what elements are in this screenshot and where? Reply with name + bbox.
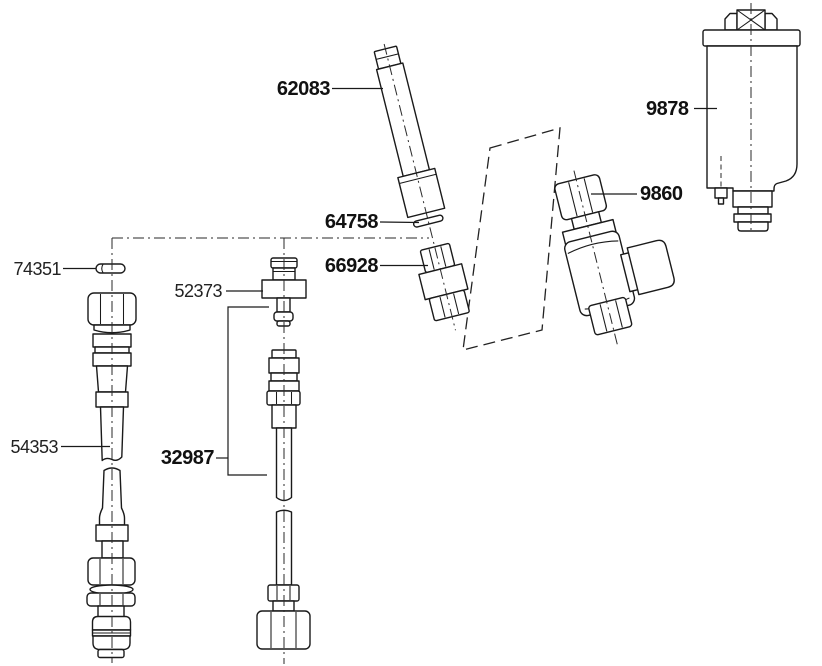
- part-label-66928: 66928: [325, 256, 378, 276]
- part-label-9860: 9860: [640, 184, 683, 204]
- part-label-52373: 52373: [174, 282, 222, 300]
- part-66928-drawing: [413, 241, 473, 322]
- dashed-boundary-box: [463, 128, 560, 350]
- part-label-9878: 9878: [646, 99, 689, 119]
- part-label-32987: 32987: [161, 448, 214, 468]
- part-label-64758: 64758: [325, 212, 378, 232]
- bracket-32987: [228, 307, 269, 475]
- parts-diagram: 62083 64758 66928 74351 52373 54353 3298…: [0, 0, 822, 666]
- diagram-canvas: [0, 0, 822, 666]
- part-74351-drawing: [96, 264, 125, 273]
- part-label-62083: 62083: [277, 79, 330, 99]
- part-64758-drawing: [413, 215, 444, 228]
- part-label-54353: 54353: [10, 438, 58, 456]
- part-label-74351: 74351: [13, 260, 61, 278]
- leader-64758: [380, 222, 419, 223]
